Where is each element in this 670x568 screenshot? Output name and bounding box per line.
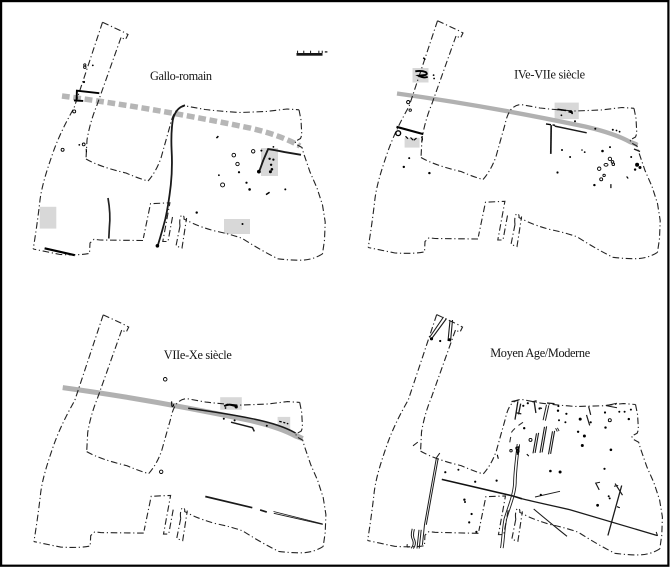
svg-text:VIIe-Xe siècle: VIIe-Xe siècle: [164, 348, 233, 362]
svg-text:Gallo-romain: Gallo-romain: [150, 69, 212, 83]
svg-text:IVe-VIIe siècle: IVe-VIIe siècle: [514, 68, 586, 82]
svg-text:Moyen Age/Moderne: Moyen Age/Moderne: [490, 346, 591, 360]
